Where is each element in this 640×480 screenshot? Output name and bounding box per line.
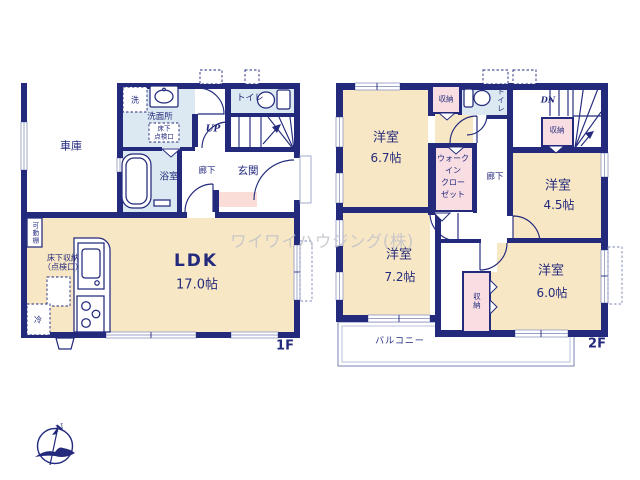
entrance-label: 玄関	[238, 165, 259, 177]
front-door-arc	[254, 160, 294, 200]
balcony-label: バルコニー	[375, 337, 425, 348]
ldk-label: LDK	[174, 251, 218, 271]
watermark: ワイワイハウジング(株)	[230, 228, 414, 252]
toilet2-label: トイレ	[496, 87, 505, 113]
washer-label: 洗	[131, 95, 139, 104]
underfloor-hatch-label: 床下 点検口	[154, 125, 174, 140]
bedroom72-size-label: 7.2帖	[384, 270, 415, 284]
entrance-porch	[300, 156, 311, 203]
kitchen-back-door	[56, 338, 74, 349]
stairs-1f	[239, 117, 294, 150]
floor2-name: 2F	[588, 336, 606, 351]
toilet1-label: トイレ	[236, 94, 263, 105]
washroom-label: 洗面所	[147, 112, 173, 122]
kitchen-counter	[74, 238, 110, 332]
bedroom45-size-label: 4.5帖	[543, 198, 574, 212]
stairs-down-label: DN	[541, 95, 555, 104]
compass-wing	[35, 448, 75, 458]
washroom-door-arc	[198, 88, 224, 114]
fridge-label: 冷	[34, 315, 42, 324]
closet-stair-label: 収納	[550, 127, 565, 136]
toilet-icon-2f	[464, 89, 490, 107]
closet-lower-label: 収納	[472, 293, 481, 310]
hall-ldk-door-arc	[185, 184, 213, 212]
hallway1-label: 廊下	[198, 166, 215, 176]
compass	[35, 427, 75, 465]
walk-in-closet-label: ウォーク イン クロー ゼット	[437, 153, 469, 201]
closet-upper-label: 収納	[439, 96, 454, 105]
hallway2-label: 廊下	[486, 172, 503, 182]
bedroom67-size-label: 6.7帖	[370, 151, 401, 165]
underfloor-storage-box	[47, 277, 70, 306]
bedroom45-label: 洋室	[545, 178, 571, 193]
floor-plan-page: 車庫 洗 洗面所 床下 点検口 トイレ UP 浴室 廊下 玄関 可動棚 床下収納…	[0, 0, 640, 480]
ldk-size-label: 17.0帖	[176, 277, 218, 292]
garage-label: 車庫	[60, 141, 82, 154]
underfloor-storage-label: 床下収納 （点検口）	[43, 254, 83, 273]
stairs-up-label: UP	[206, 125, 221, 136]
bedroom67-label: 洋室	[373, 130, 399, 145]
floor1-name: 1F	[276, 338, 294, 353]
movable-shelf-label: 可動棚	[30, 222, 38, 245]
entrance-step	[217, 192, 257, 207]
washbasin-icon	[150, 86, 178, 107]
bathroom-label: 浴室	[159, 171, 178, 182]
bedroom60-size-label: 6.0帖	[536, 286, 567, 300]
bedroom60-label: 洋室	[538, 263, 564, 278]
